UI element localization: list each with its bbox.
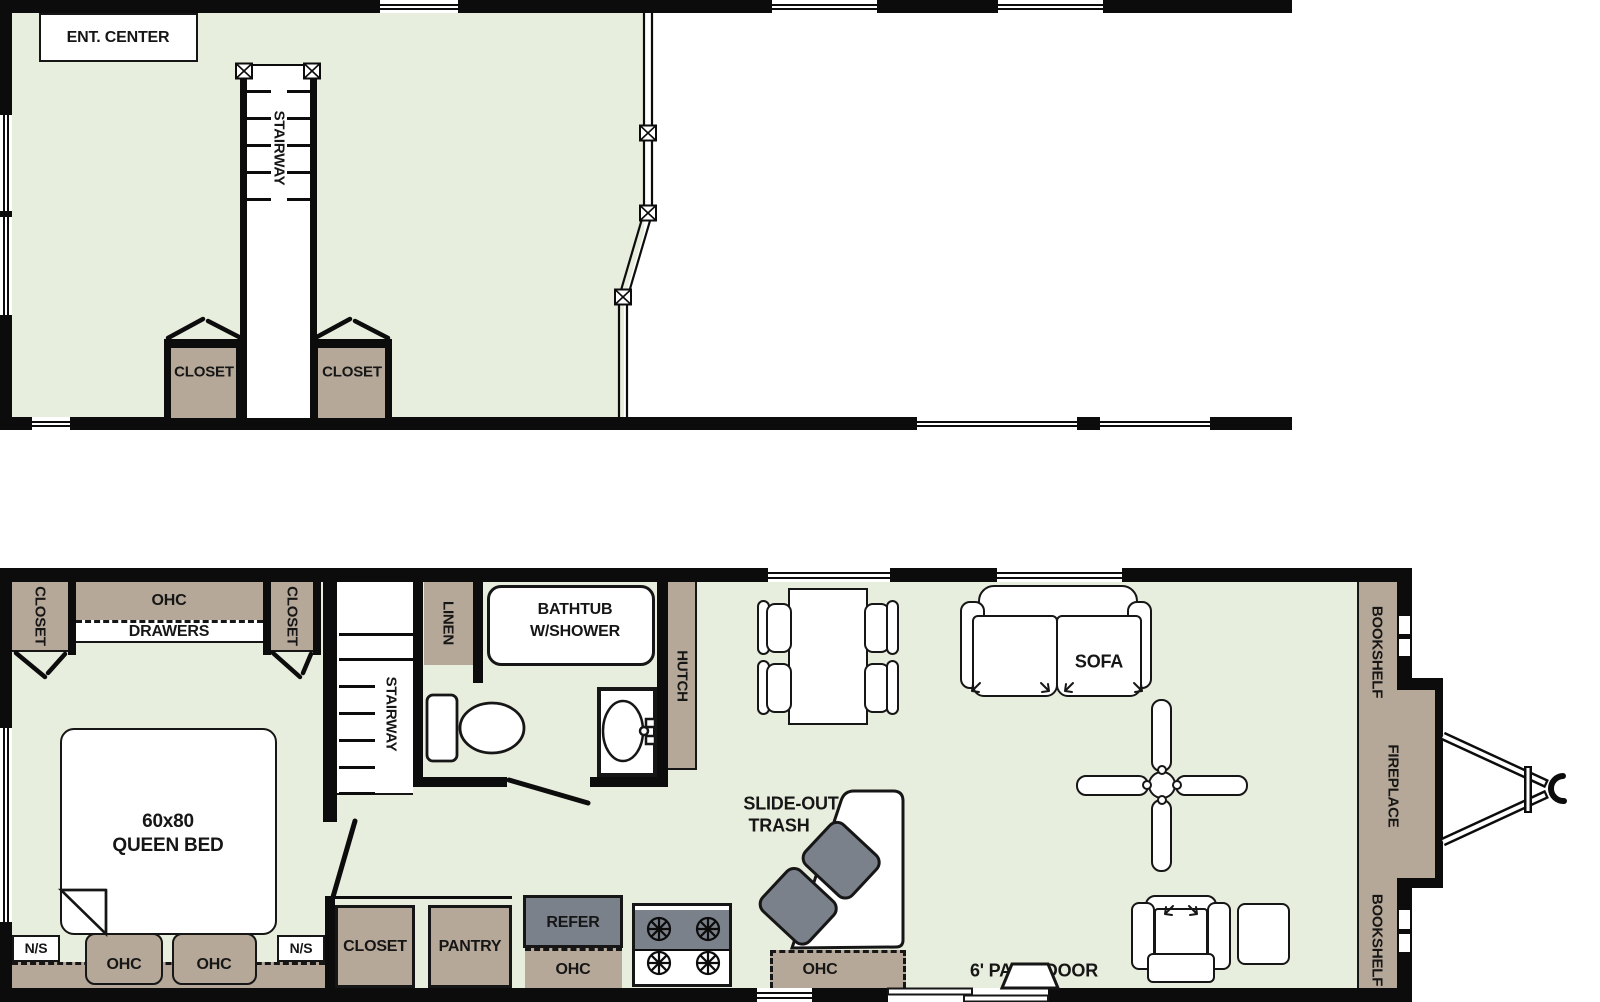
stair-wall-right [413, 582, 423, 785]
dining-chair-seat [766, 603, 792, 653]
sofa-label: SOFA [1075, 652, 1123, 673]
linen-label: LINEN [440, 601, 457, 645]
loft-stairway-label: STAIRWAY [271, 111, 288, 186]
slide-out-trash-label-1: SLIDE-OUT [743, 794, 838, 815]
fan-hub [1148, 771, 1176, 799]
bath-living-wall [657, 582, 668, 778]
loft-closet-left [171, 348, 236, 418]
loft-tread [287, 144, 310, 147]
bath-bottom-wall-right [590, 777, 668, 787]
fan-blade-n [1151, 699, 1172, 772]
closet-frame [236, 339, 243, 418]
fan-blade-e [1175, 775, 1248, 796]
loft-tread [247, 171, 271, 174]
vent-divider [1399, 929, 1410, 934]
main-window-top-2 [997, 568, 1122, 582]
bedroom-closet-left-label: CLOSET [32, 586, 49, 646]
loft-tread [247, 90, 271, 93]
main-wall-top [0, 568, 1412, 582]
linen-wall [473, 582, 483, 683]
stair-tread [339, 792, 375, 795]
stair-tread [339, 766, 375, 769]
loft-window-top-1 [380, 0, 458, 13]
refer-label: REFER [546, 914, 599, 932]
right-wall-vent-top [1399, 616, 1410, 656]
hutch-label: HUTCH [674, 650, 691, 702]
stair-tread [339, 658, 413, 661]
hitch-coupler-icon [1551, 776, 1564, 801]
stair-tread [339, 633, 413, 636]
loft-window-left [0, 115, 12, 315]
stair-tread [339, 712, 375, 715]
main-wall-bottom [0, 988, 1412, 1002]
loft-wall-bottom [0, 417, 1292, 430]
kitchen-left-wall [325, 898, 335, 988]
main-window-top-1 [768, 568, 890, 582]
loft-tread [287, 171, 310, 174]
loft-tread [247, 117, 271, 120]
loft-closet-right [318, 348, 385, 418]
counter-edge [325, 896, 512, 899]
bedroom-closet-right-label: CLOSET [284, 586, 301, 646]
ohc-bottom-right-label: OHC [197, 956, 232, 974]
dining-chair [886, 600, 899, 655]
loft-closet-left-label: CLOSET [174, 364, 234, 381]
ns-right-label: N/S [290, 940, 313, 956]
main-window-bottom [757, 988, 812, 1002]
stove-divider [635, 949, 729, 951]
bedroom-drawers-label: DRAWERS [129, 623, 209, 641]
fan-blade-w [1076, 775, 1149, 796]
slide-out-trash-label-2: TRASH [749, 816, 810, 837]
fan-blade-s [1151, 799, 1172, 872]
closet-frame [311, 339, 392, 348]
bathtub-label-1: BATHTUB [538, 601, 613, 619]
stairwell [337, 582, 413, 795]
sink-vanity [597, 687, 657, 777]
patio-door-opening [888, 988, 1048, 1002]
bookshelf-top-label: BOOKSHELF [1369, 606, 1386, 698]
cooktop-panel [635, 910, 729, 949]
bookshelf-bottom-label: BOOKSHELF [1369, 894, 1386, 986]
loft-tread [287, 90, 310, 93]
sofa-seat-left [972, 615, 1058, 697]
loft-window-bottom-1 [32, 417, 70, 430]
kitchen-closet-label: CLOSET [343, 938, 407, 956]
loft-tread [287, 117, 310, 120]
vent-divider [1399, 634, 1410, 639]
loft-closet-right-label: CLOSET [322, 364, 382, 381]
closet-frame [311, 339, 318, 418]
trailer-hitch [1443, 736, 1564, 842]
loft-tread [247, 144, 271, 147]
loft-window-top-3 [998, 0, 1103, 13]
right-wall-vent-bottom [1399, 910, 1410, 952]
stair-tread [339, 739, 375, 742]
dining-chair [886, 660, 899, 715]
closet-partition [68, 582, 76, 655]
fireplace-label: FIREPLACE [1385, 744, 1402, 827]
counter-ohc-label: OHC [803, 961, 838, 979]
loft-window-top-2 [772, 0, 877, 13]
main-window-left [0, 728, 12, 922]
bed-size-label: 60x80 [142, 811, 194, 833]
ent-center-label: ENT. CENTER [67, 29, 170, 47]
ohc-bottom-left-label: OHC [107, 956, 142, 974]
counter-ohc [770, 950, 906, 988]
loft-window-bottom-2 [917, 417, 1077, 430]
dining-table [788, 588, 868, 725]
bedroom-base-cabinet [12, 962, 325, 988]
loft-tread [247, 198, 271, 201]
patio-door-label: 6' PATIO DOOR [970, 961, 1098, 982]
bedroom-stair-wall [323, 582, 337, 822]
closet-frame [164, 339, 243, 348]
ohc-under-refer-label: OHC [556, 961, 591, 979]
fireplace-cabinet [1397, 690, 1435, 878]
loft-window-bottom-3 [1100, 417, 1210, 430]
window-divider [0, 211, 12, 217]
closet-partition [263, 582, 271, 655]
bath-bottom-wall-left [413, 777, 507, 787]
ns-left-label: N/S [25, 940, 48, 956]
dining-chair-seat [766, 663, 792, 713]
stairway-label: STAIRWAY [383, 677, 400, 752]
stair-tread [339, 685, 375, 688]
floorplan-canvas: ENT. CENTER STAIRWAY CLOSET CLOSET CLOSE… [0, 0, 1600, 1002]
pantry-label: PANTRY [439, 938, 502, 956]
loft-stair-top-edge [247, 64, 310, 66]
loft-tread [287, 198, 310, 201]
chair-footrest [1147, 953, 1215, 983]
side-table [1237, 903, 1290, 965]
bedroom-right-wall [313, 582, 321, 655]
closet-frame [385, 339, 392, 418]
closet-frame [164, 339, 171, 418]
bathtub-label-2: W/SHOWER [530, 623, 620, 641]
bedroom-ohc-label: OHC [152, 592, 187, 610]
bed-type-label: QUEEN BED [112, 835, 223, 857]
